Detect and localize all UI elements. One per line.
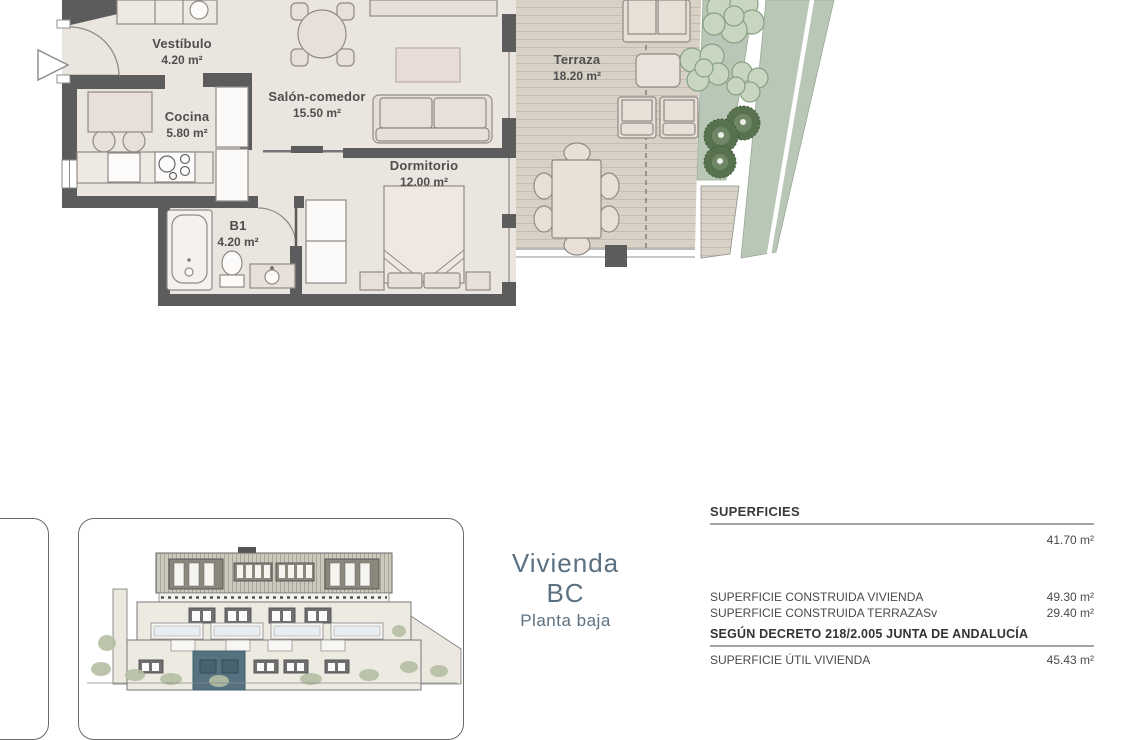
sideboard xyxy=(370,0,497,16)
room-label-salon: Salón-comedor xyxy=(268,89,365,104)
chimney xyxy=(238,547,256,553)
kitchen-window xyxy=(62,160,77,188)
building-elevation xyxy=(79,519,463,739)
terrace-table xyxy=(552,160,601,238)
penthouse-level xyxy=(156,547,392,602)
neighbor-deck xyxy=(701,186,739,258)
elevation-card xyxy=(78,518,464,740)
surfaces-total-value: 41.70 m² xyxy=(1047,533,1094,547)
surfaces-row-value: 49.30 m² xyxy=(1047,589,1094,605)
room-label-cocina: Cocina xyxy=(165,109,210,124)
surfaces-table: SUPERFICIES 41.70 m² SUPERFICIE CONSTRUI… xyxy=(710,504,1094,668)
terrace-chair xyxy=(599,173,619,199)
room-area-terraza: 18.20 m² xyxy=(553,69,601,83)
surfaces-total-row: 41.70 m² xyxy=(710,533,1094,547)
room-label-b1: B1 xyxy=(229,218,246,233)
room-area-salon: 15.50 m² xyxy=(293,106,341,120)
balcony xyxy=(268,640,292,651)
balcony xyxy=(226,640,250,651)
balcony xyxy=(171,640,195,651)
tv-icon xyxy=(291,146,323,153)
middle-level xyxy=(137,602,411,640)
outdoor-armchair xyxy=(618,97,656,138)
tall-cabinet xyxy=(216,87,248,147)
toilet-icon xyxy=(220,251,244,287)
pillow xyxy=(424,273,460,288)
surfaces-title: SUPERFICIES xyxy=(710,504,1094,525)
kitchen-table xyxy=(88,92,152,132)
room-label-dormitorio: Dormitorio xyxy=(390,158,458,173)
sofa xyxy=(373,95,492,143)
room-label-terraza: Terraza xyxy=(554,52,601,67)
terrace-post xyxy=(605,245,627,267)
surfaces-row-label: SUPERFICIE CONSTRUIDA TERRAZASv xyxy=(710,605,937,621)
surfaces-util-label: SUPERFICIE ÚTIL VIVIENDA xyxy=(710,652,870,668)
room-area-vestibulo: 4.20 m² xyxy=(161,53,202,67)
unit-label: Vivienda BC Planta baja xyxy=(478,548,653,634)
outdoor-sofa xyxy=(623,0,690,42)
room-area-dormitorio: 12.00 m² xyxy=(400,175,448,189)
surfaces-row: SUPERFICIE CONSTRUIDA VIVIENDA 49.30 m² xyxy=(710,589,1094,605)
fridge xyxy=(216,149,248,201)
surfaces-row-label: SUPERFICIE CONSTRUIDA VIVIENDA xyxy=(710,589,923,605)
round-table xyxy=(298,10,346,58)
terrace-chair xyxy=(599,206,619,232)
floor-plan-svg: Vestíbulo 4.20 m² Cocina 5.80 m² Salón-c… xyxy=(0,0,1130,330)
pillow xyxy=(388,273,422,288)
bedroom-furniture xyxy=(306,186,490,290)
room-area-b1: 4.20 m² xyxy=(217,235,258,249)
outdoor-armchair xyxy=(660,97,698,138)
unit-name-line1: Vivienda xyxy=(478,548,653,578)
terrace-chair xyxy=(534,173,554,199)
floor-plan: Vestíbulo 4.20 m² Cocina 5.80 m² Salón-c… xyxy=(0,0,1130,330)
nightstand xyxy=(360,272,384,290)
bush-icon xyxy=(680,44,729,91)
surfaces-row-value: 29.40 m² xyxy=(1047,605,1094,621)
elevation-card-partial xyxy=(0,518,49,740)
stool xyxy=(93,130,115,152)
kitchen-sink-unit xyxy=(108,153,140,182)
nightstand xyxy=(466,272,490,290)
rug xyxy=(396,48,460,82)
stool xyxy=(123,130,145,152)
vanity-sink xyxy=(250,264,295,288)
surfaces-util-value: 45.43 m² xyxy=(1047,652,1094,668)
room-area-cocina: 5.80 m² xyxy=(166,126,207,140)
surfaces-decree-heading: SEGÚN DECRETO 218/2.005 JUNTA DE ANDALUC… xyxy=(710,627,1094,647)
sink-icon xyxy=(190,1,208,19)
coffee-table xyxy=(636,54,680,87)
dining-set-round xyxy=(291,3,354,66)
balcony xyxy=(321,640,345,651)
terrace-chair xyxy=(534,206,554,232)
retaining-wall xyxy=(113,589,127,684)
room-label-vestibulo: Vestíbulo xyxy=(152,36,212,51)
surfaces-util-row: SUPERFICIE ÚTIL VIVIENDA 45.43 m² xyxy=(710,652,1094,668)
surfaces-row: SUPERFICIE CONSTRUIDA TERRAZASv 29.40 m² xyxy=(710,605,1094,621)
unit-name-line2: BC xyxy=(478,578,653,608)
unit-floor-label: Planta baja xyxy=(478,608,653,634)
